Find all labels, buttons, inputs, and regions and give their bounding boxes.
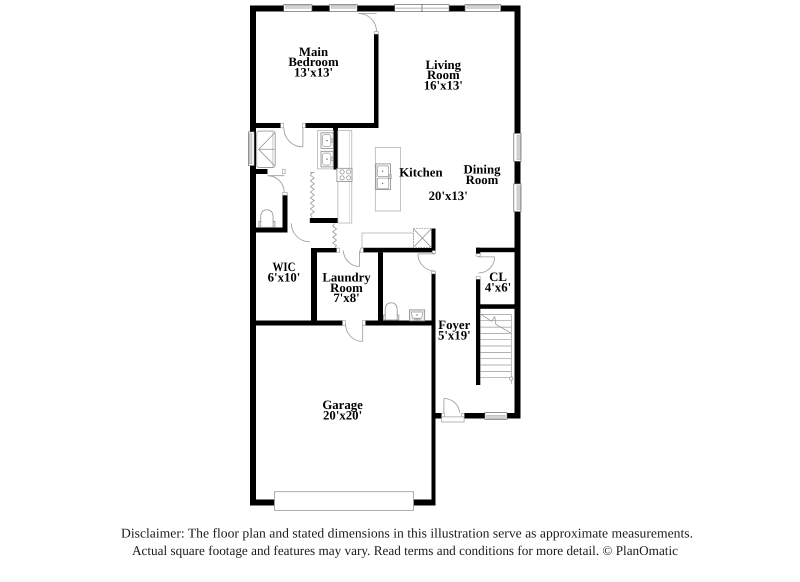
svg-text:16'x13': 16'x13' — [424, 78, 463, 92]
svg-text:7'x8': 7'x8' — [333, 291, 359, 305]
svg-text:4'x6': 4'x6' — [485, 281, 511, 295]
svg-text:Disclaimer: The floor plan and: Disclaimer: The floor plan and stated di… — [121, 526, 693, 541]
svg-text:Kitchen: Kitchen — [399, 166, 442, 180]
svg-text:Room: Room — [466, 173, 499, 187]
svg-text:13'x13': 13'x13' — [294, 66, 333, 80]
svg-text:20'x20': 20'x20' — [323, 409, 362, 423]
svg-text:20'x13': 20'x13' — [429, 189, 468, 203]
svg-text:Actual square footage and feat: Actual square footage and features may v… — [132, 543, 678, 558]
svg-text:5'x19': 5'x19' — [438, 329, 471, 343]
svg-text:6'x10': 6'x10' — [268, 270, 301, 284]
